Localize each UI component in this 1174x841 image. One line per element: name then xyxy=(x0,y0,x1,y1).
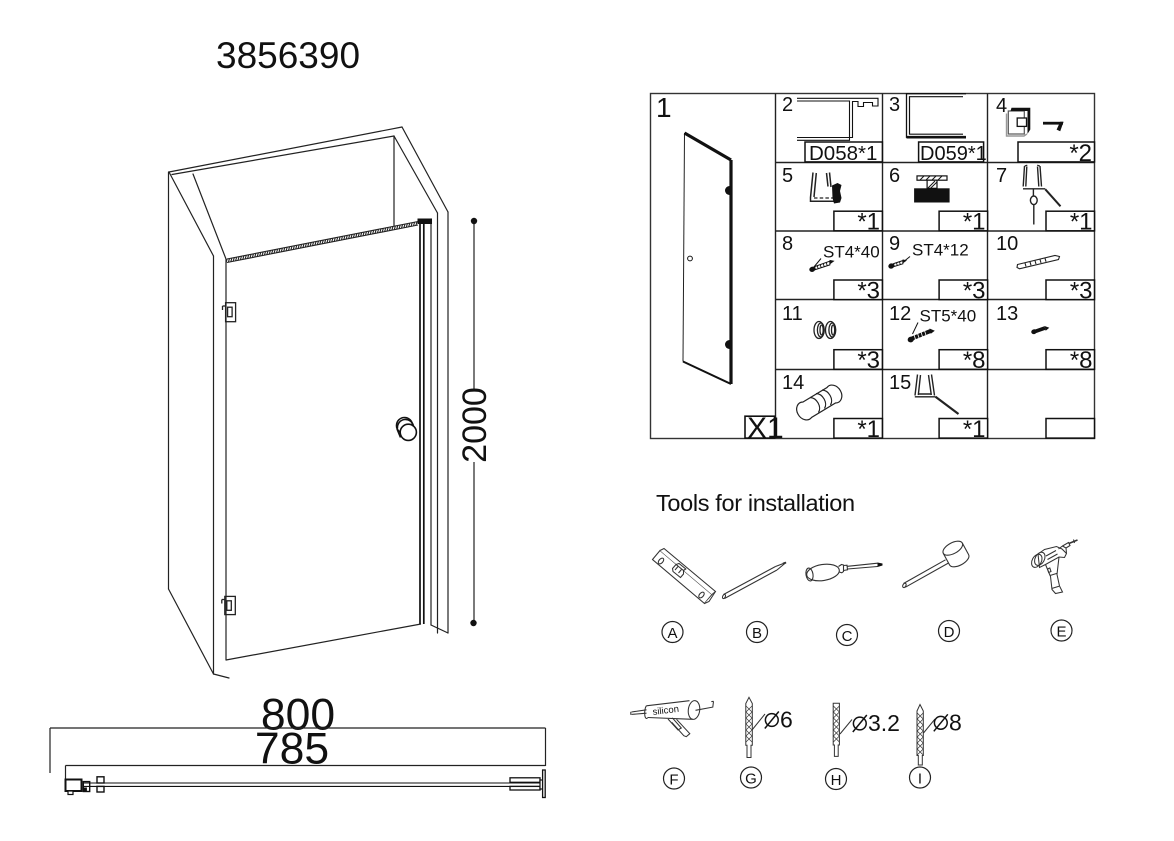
svg-text:*1: *1 xyxy=(963,209,986,236)
svg-text:I: I xyxy=(918,771,922,788)
svg-text:D: D xyxy=(944,624,955,641)
svg-text:B: B xyxy=(752,625,762,642)
svg-text:H: H xyxy=(831,772,842,789)
svg-text:*1: *1 xyxy=(963,416,986,443)
svg-text:ST5*40: ST5*40 xyxy=(920,307,977,326)
svg-text:2000: 2000 xyxy=(456,387,494,463)
svg-text:X1: X1 xyxy=(747,412,784,445)
svg-text:G: G xyxy=(745,771,757,788)
svg-text:12: 12 xyxy=(889,303,911,325)
svg-text:4: 4 xyxy=(996,95,1007,117)
svg-text:*3: *3 xyxy=(963,278,986,305)
svg-text:A: A xyxy=(667,625,677,642)
svg-text:13: 13 xyxy=(996,303,1018,325)
svg-text:6: 6 xyxy=(780,707,793,733)
svg-text:6: 6 xyxy=(889,165,900,187)
svg-text:15: 15 xyxy=(889,372,911,394)
svg-text:14: 14 xyxy=(782,372,804,394)
svg-text:*3: *3 xyxy=(1070,278,1093,305)
svg-text:D059*1: D059*1 xyxy=(920,143,987,165)
svg-text:*1: *1 xyxy=(857,209,880,236)
svg-text:785: 785 xyxy=(255,725,329,774)
svg-text:silicon: silicon xyxy=(652,704,680,718)
svg-text:3.2: 3.2 xyxy=(868,710,900,736)
svg-text:Tools for installation: Tools for installation xyxy=(656,490,855,516)
svg-text:3856390: 3856390 xyxy=(216,35,360,76)
svg-text:3: 3 xyxy=(889,94,900,116)
svg-text:7: 7 xyxy=(996,165,1007,187)
svg-text:2: 2 xyxy=(782,94,793,116)
svg-text:ST4*12: ST4*12 xyxy=(912,241,969,260)
svg-text:*1: *1 xyxy=(1070,209,1093,236)
svg-text:10: 10 xyxy=(996,233,1018,255)
svg-text:1: 1 xyxy=(656,92,672,123)
svg-text:9: 9 xyxy=(889,233,900,255)
svg-text:D058*1: D058*1 xyxy=(809,142,877,165)
svg-text:*8: *8 xyxy=(963,347,986,374)
svg-text:8: 8 xyxy=(782,233,793,255)
svg-text:*3: *3 xyxy=(857,347,880,374)
svg-text:*3: *3 xyxy=(857,278,880,305)
svg-text:E: E xyxy=(1056,624,1066,641)
svg-text:*2: *2 xyxy=(1069,140,1092,167)
svg-text:*1: *1 xyxy=(857,416,880,443)
svg-text:5: 5 xyxy=(782,165,793,187)
svg-text:C: C xyxy=(842,628,853,645)
svg-text:*8: *8 xyxy=(1070,347,1093,374)
svg-text:ST4*40: ST4*40 xyxy=(823,243,880,262)
svg-text:11: 11 xyxy=(782,303,803,325)
svg-text:F: F xyxy=(669,772,678,789)
svg-text:8: 8 xyxy=(949,710,962,736)
